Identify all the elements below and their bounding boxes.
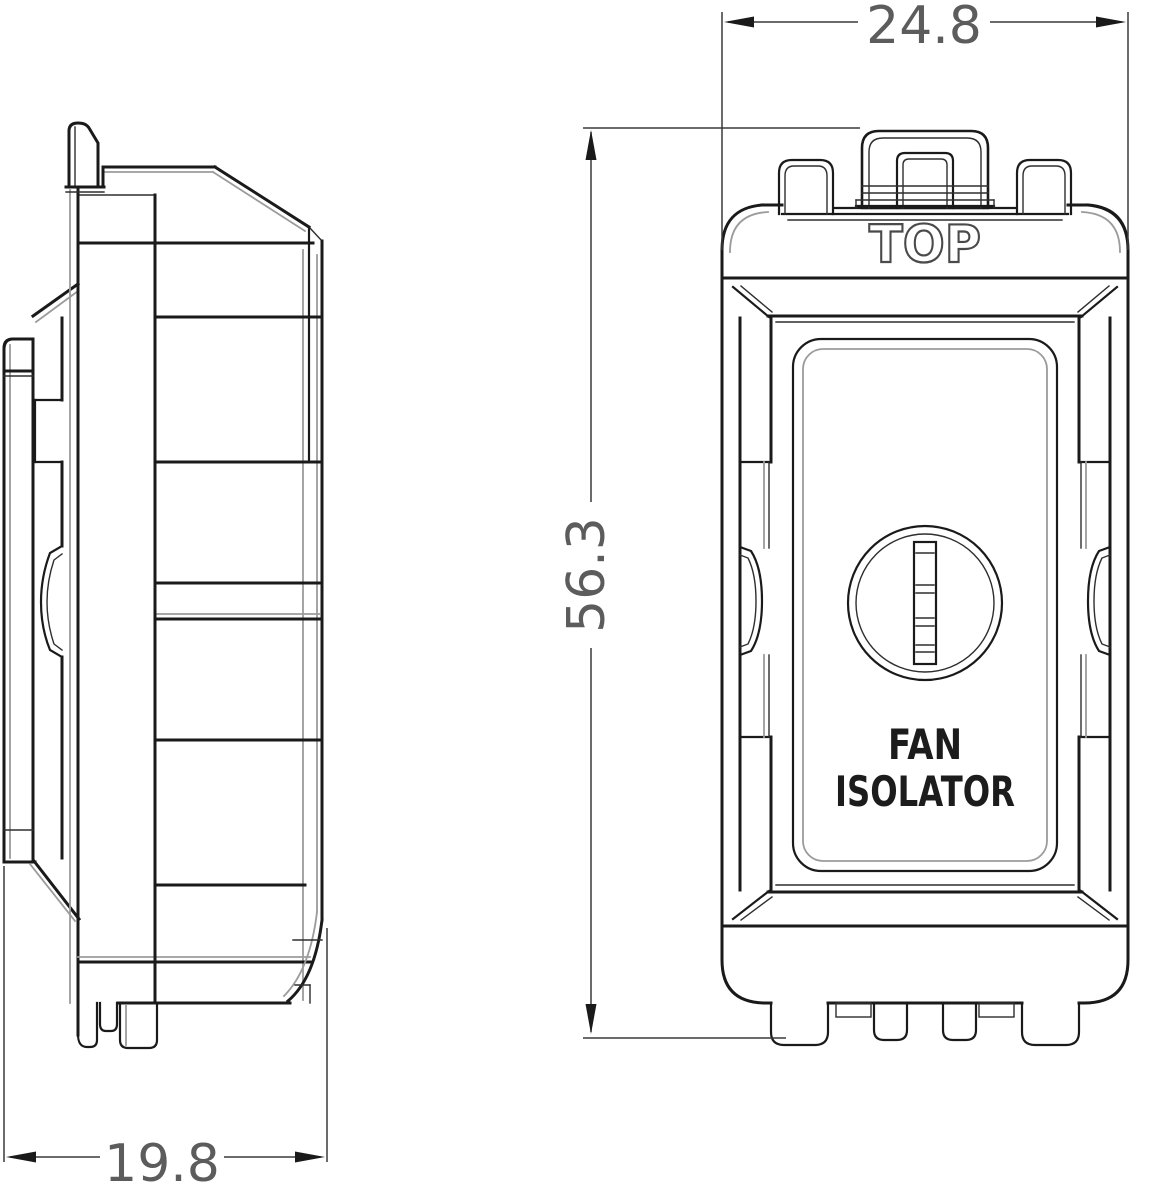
dimension-depth: 19.8 (4, 866, 327, 1194)
key-switch (848, 526, 1002, 680)
arrow-right (295, 1152, 325, 1163)
arrow-up (586, 130, 597, 160)
front-right-rail (1079, 318, 1110, 890)
side-latch-lug (41, 546, 62, 657)
technical-drawing-canvas: TOP FAN ISOLATOR 24.8 56.3 19.8 (0, 0, 1152, 1200)
dim-depth-value: 19.8 (104, 1134, 220, 1194)
device-label-line2: ISOLATOR (835, 767, 1015, 816)
side-top-clip (66, 123, 104, 192)
arrow-down (586, 1004, 597, 1034)
front-bottom-feet (771, 1003, 1079, 1045)
drawing-svg: TOP FAN ISOLATOR 24.8 56.3 19.8 (0, 0, 1152, 1200)
device-label-line1: FAN (888, 720, 962, 769)
side-view (4, 123, 322, 1048)
dimension-height: 56.3 (557, 128, 860, 1038)
side-bottom-feet (78, 1003, 157, 1048)
arrow-right (1096, 17, 1126, 28)
dim-width-value: 24.8 (866, 0, 982, 56)
arrow-left (724, 17, 754, 28)
top-label: TOP (869, 215, 981, 275)
dimension-width: 24.8 (722, 0, 1128, 250)
dim-height-value: 56.3 (557, 517, 617, 633)
front-left-rail (740, 318, 771, 890)
arrow-left (6, 1152, 36, 1163)
front-top-clip (856, 131, 994, 208)
